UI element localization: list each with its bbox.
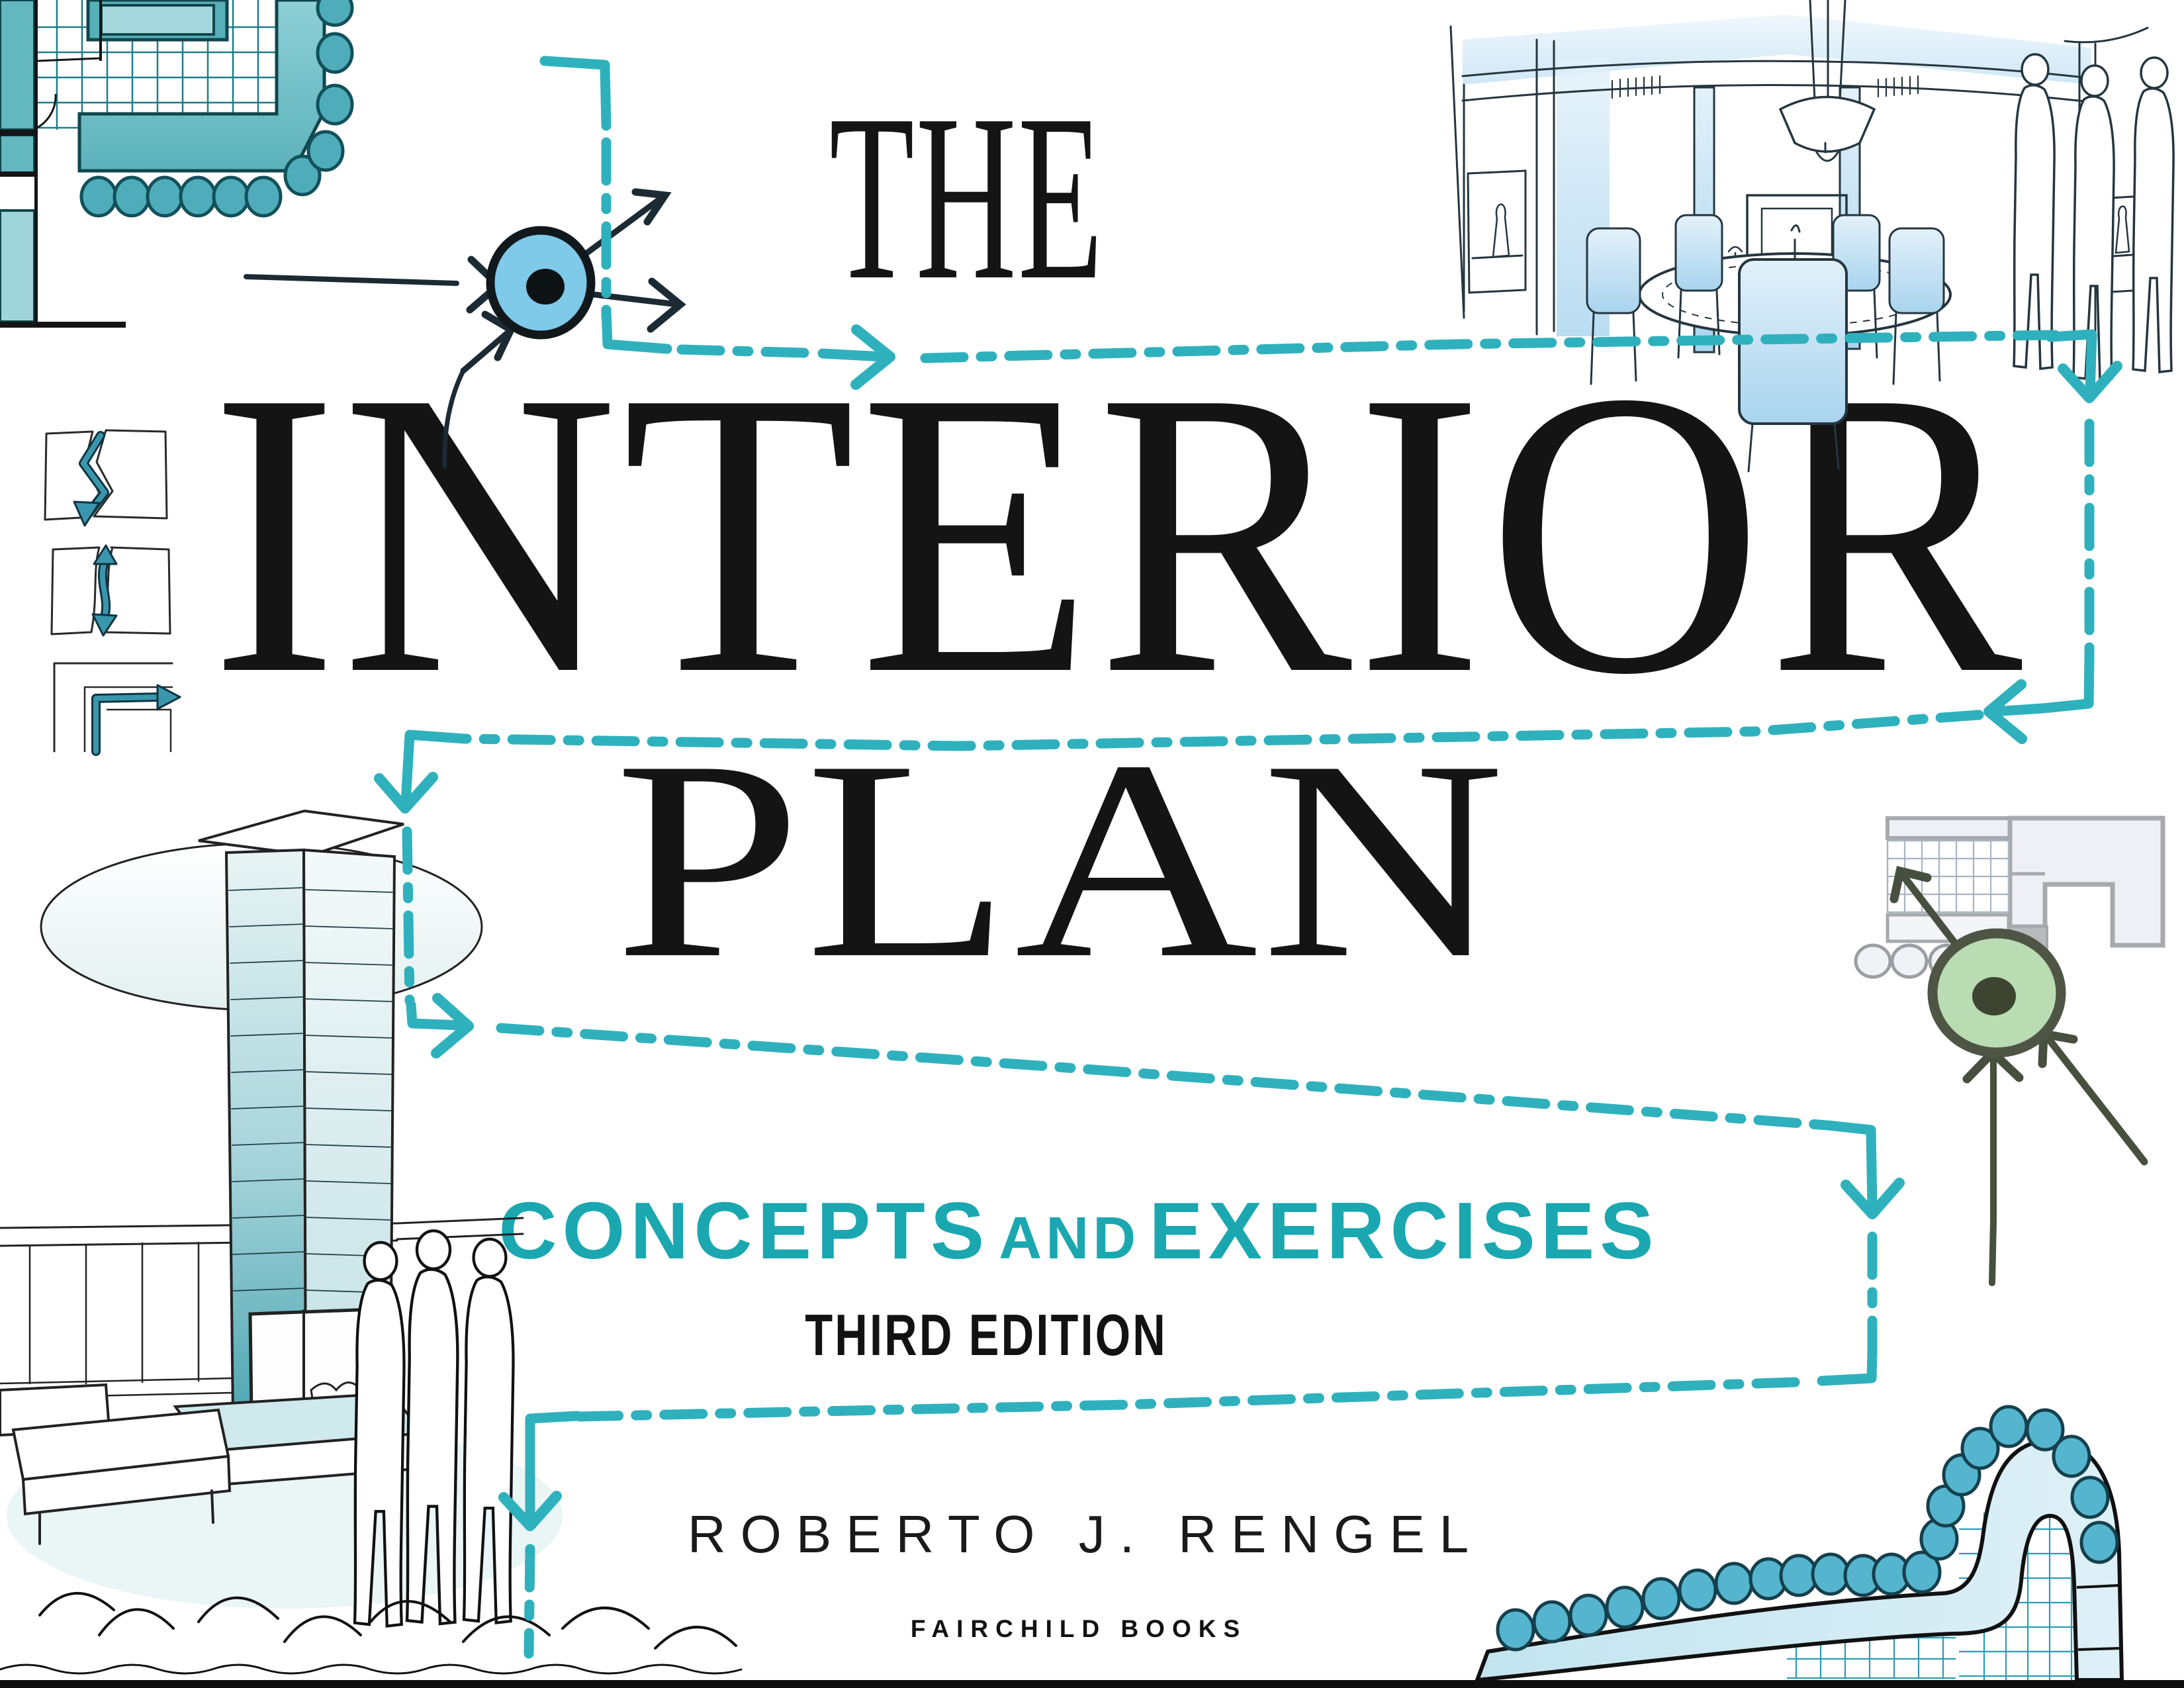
bottom-border-bar xyxy=(0,1680,2184,1688)
subtitle-exercises: EXERCISES xyxy=(1149,1186,1659,1276)
author-name: ROBERTO J. RENGEL xyxy=(596,1504,1575,1565)
circulation-concept-diagram-icons xyxy=(45,430,180,751)
gray-floor-plan-sketch-icon xyxy=(1856,818,2163,977)
title-word-interior: INTERIOR xyxy=(210,330,2026,737)
publisher-name: FAIRCHILD BOOKS xyxy=(596,1615,1562,1643)
subtitle-concepts: CONCEPTS xyxy=(498,1186,989,1276)
edition-text: THIRD EDITION xyxy=(805,1301,1167,1369)
subtitle-and: AND xyxy=(989,1205,1149,1272)
subtitle: CONCEPTSANDEXERCISES xyxy=(463,1184,1694,1277)
edition-label: THIRD EDITION xyxy=(463,1301,1509,1369)
title-word-plan: PLAN xyxy=(614,718,1508,1002)
green-circulation-node-icon xyxy=(1894,871,2144,1283)
floor-plan-sketch-icon xyxy=(0,0,352,328)
title-word-the: THE xyxy=(829,78,1105,316)
